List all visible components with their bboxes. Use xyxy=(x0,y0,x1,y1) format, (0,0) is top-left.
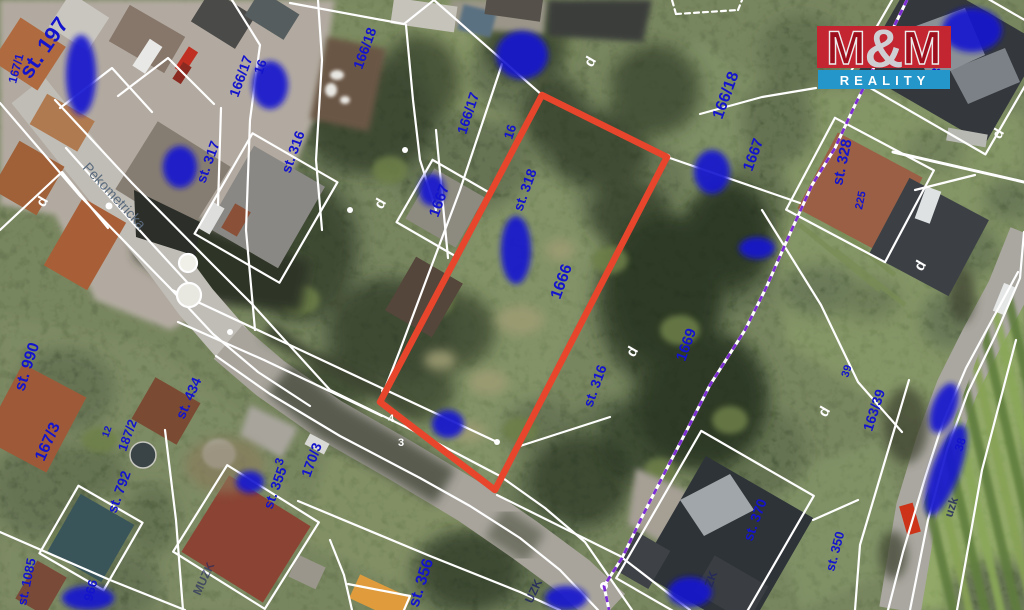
svg-text:M: M xyxy=(902,21,941,74)
svg-text:M: M xyxy=(826,21,865,74)
svg-text:REALITY: REALITY xyxy=(840,73,931,88)
svg-text:4: 4 xyxy=(388,413,395,425)
svg-text:3: 3 xyxy=(398,437,404,449)
